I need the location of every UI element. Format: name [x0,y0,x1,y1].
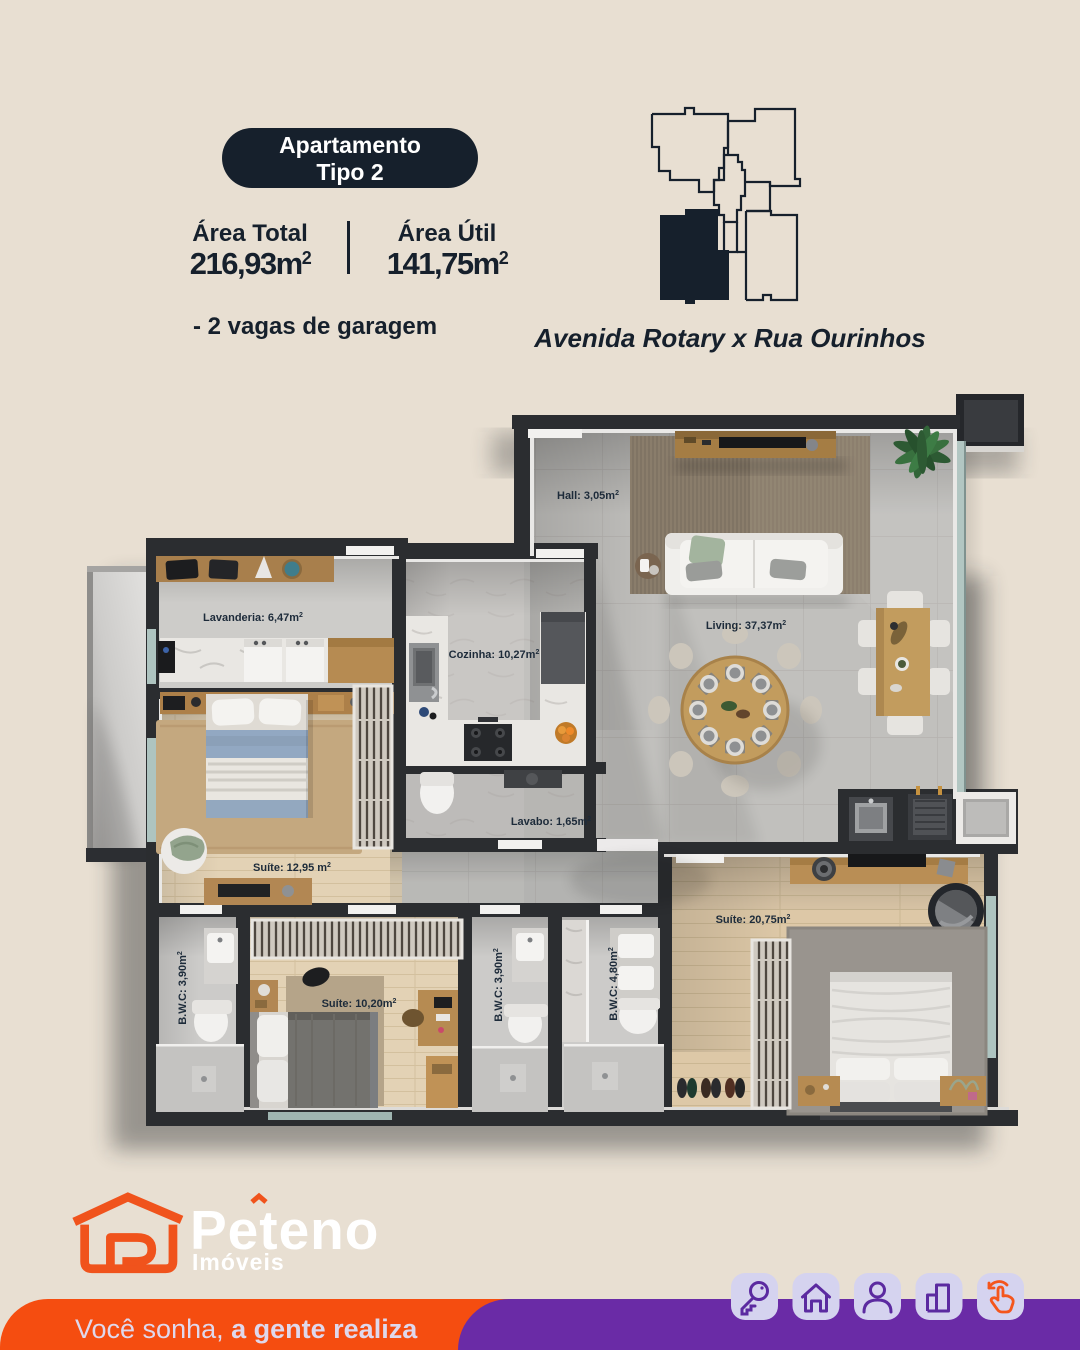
svg-text:B.W.C: 3,90m2: B.W.C: 3,90m2 [177,951,189,1025]
svg-text:Hall: 3,05m2: Hall: 3,05m2 [557,490,619,502]
svg-text:B.W.C: 4,80m2: B.W.C: 4,80m2 [608,947,620,1021]
svg-text:Suíte: 12,95 m2: Suíte: 12,95 m2 [253,862,331,874]
svg-text:Suíte: 20,75m2: Suíte: 20,75m2 [716,914,791,926]
svg-text:Living: 37,37m2: Living: 37,37m2 [706,620,786,632]
svg-text:Lavanderia: 6,47m2: Lavanderia: 6,47m2 [203,612,303,624]
svg-text:Lavabo: 1,65m2: Lavabo: 1,65m2 [511,816,591,828]
svg-text:Suíte: 10,20m2: Suíte: 10,20m2 [322,998,397,1010]
svg-text:Imóveis: Imóveis [192,1249,285,1275]
svg-text:B.W.C: 3,90m2: B.W.C: 3,90m2 [493,948,505,1022]
svg-text:Cozinha: 10,27m2: Cozinha: 10,27m2 [449,649,540,661]
